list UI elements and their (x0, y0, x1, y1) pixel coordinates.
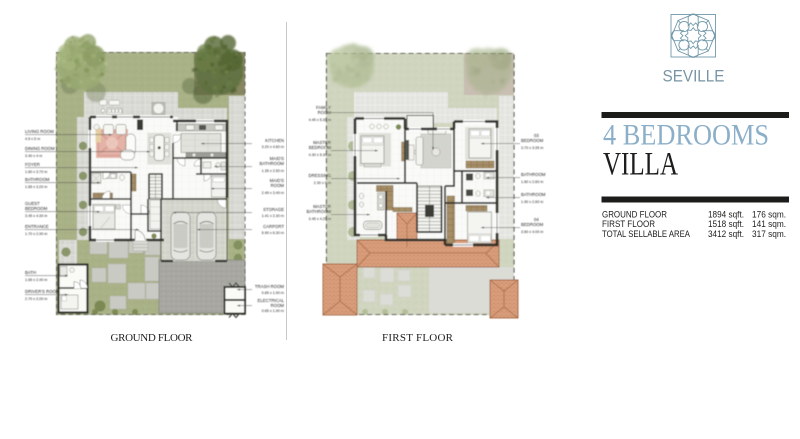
svg-text:FOYER: FOYER (25, 162, 40, 167)
svg-text:0.65 x 1.90 m: 0.65 x 1.90 m (262, 291, 284, 295)
svg-text:3.40 x 4 m: 3.40 x 4 m (25, 154, 42, 158)
svg-text:BATHROOM: BATHROOM (25, 177, 50, 182)
svg-text:1.41 x 2.30 m: 1.41 x 2.30 m (262, 214, 284, 218)
svg-text:317 sqm.: 317 sqm. (752, 229, 786, 239)
svg-text:TRASH ROOM: TRASH ROOM (255, 284, 285, 289)
svg-text:4.30 x 5.30 m: 4.30 x 5.30 m (309, 153, 331, 157)
svg-text:ROOM: ROOM (271, 303, 285, 308)
svg-text:1.65 x 3.20 m: 1.65 x 3.20 m (25, 185, 47, 189)
svg-text:KITCHEN: KITCHEN (265, 138, 284, 143)
svg-text:LIVING ROOM: LIVING ROOM (25, 129, 54, 134)
svg-text:BATHROOM: BATHROOM (259, 161, 284, 166)
svg-text:0.65 x 1.90 m: 0.65 x 1.90 m (262, 309, 284, 313)
svg-text:3.45 x 4.30 m: 3.45 x 4.30 m (25, 214, 47, 218)
svg-text:STORAGE: STORAGE (263, 207, 284, 212)
svg-text:BEDROOM: BEDROOM (309, 145, 332, 150)
svg-text:1.90 x 2.60 m: 1.90 x 2.60 m (521, 200, 543, 204)
svg-text:GROUND FLOOR: GROUND FLOOR (111, 332, 194, 344)
svg-text:3.60 x 4.00 m: 3.60 x 4.00 m (521, 230, 543, 234)
svg-text:176 sqm.: 176 sqm. (752, 210, 786, 220)
svg-text:GROUND FLOOR: GROUND FLOOR (602, 210, 667, 220)
svg-text:BATHROOM: BATHROOM (521, 192, 546, 197)
svg-text:FIRST FLOOR: FIRST FLOOR (602, 219, 655, 229)
svg-text:BEDROOM: BEDROOM (521, 138, 544, 143)
svg-text:3.45 x 4.25 m: 3.45 x 4.25 m (309, 217, 331, 221)
svg-text:VILLA: VILLA (603, 147, 678, 183)
svg-text:1.35 x 2.50 m: 1.35 x 2.50 m (262, 169, 284, 173)
svg-text:2.70 x 2.00 m: 2.70 x 2.00 m (25, 297, 47, 301)
svg-text:1.60 x 3.70 m: 1.60 x 3.70 m (25, 170, 47, 174)
svg-text:DINING ROOM: DINING ROOM (25, 146, 55, 151)
svg-text:BATH: BATH (25, 270, 36, 275)
svg-text:BATHROOM: BATHROOM (521, 172, 546, 177)
svg-text:1.65 x 2.40 m: 1.65 x 2.40 m (25, 278, 47, 282)
svg-text:CARPORT: CARPORT (263, 224, 284, 229)
svg-text:2.30 x 5 m: 2.30 x 5 m (314, 181, 331, 185)
svg-text:1518 sqft.: 1518 sqft. (708, 219, 744, 229)
svg-text:3.70 x 3.95 m: 3.70 x 3.95 m (521, 146, 543, 150)
svg-text:3.20 x 4.60 m: 3.20 x 4.60 m (262, 145, 284, 149)
svg-text:BEDROOM: BEDROOM (521, 222, 544, 227)
svg-text:141 sqm.: 141 sqm. (752, 219, 786, 229)
svg-text:BEDROOM: BEDROOM (25, 206, 48, 211)
svg-text:DRIVER'S ROOM: DRIVER'S ROOM (25, 289, 60, 294)
svg-text:DRESSING: DRESSING (309, 173, 332, 178)
svg-text:3412 sqft.: 3412 sqft. (708, 229, 744, 239)
svg-text:1.70 x 2.90 m: 1.70 x 2.90 m (25, 232, 47, 236)
svg-text:1894 sqft.: 1894 sqft. (708, 210, 744, 220)
svg-text:4.45 x 5.30 m: 4.45 x 5.30 m (309, 118, 331, 122)
svg-text:ROOM: ROOM (318, 110, 332, 115)
svg-text:2.49 x 3.49 m: 2.49 x 3.49 m (262, 191, 284, 195)
svg-text:TOTAL SELLABLE AREA: TOTAL SELLABLE AREA (602, 229, 691, 239)
svg-text:ENTRANCE: ENTRANCE (25, 224, 49, 229)
svg-text:1.60 x 2.60 m: 1.60 x 2.60 m (521, 180, 543, 184)
svg-text:4.5 x 5 m: 4.5 x 5 m (25, 137, 40, 141)
svg-text:SEVILLE: SEVILLE (663, 68, 725, 86)
svg-text:ROOM: ROOM (271, 183, 285, 188)
svg-text:FIRST FLOOR: FIRST FLOOR (382, 332, 454, 344)
svg-text:BATHROOM: BATHROOM (306, 209, 331, 214)
svg-text:5.90 x 6.30 m: 5.90 x 6.30 m (262, 231, 284, 235)
